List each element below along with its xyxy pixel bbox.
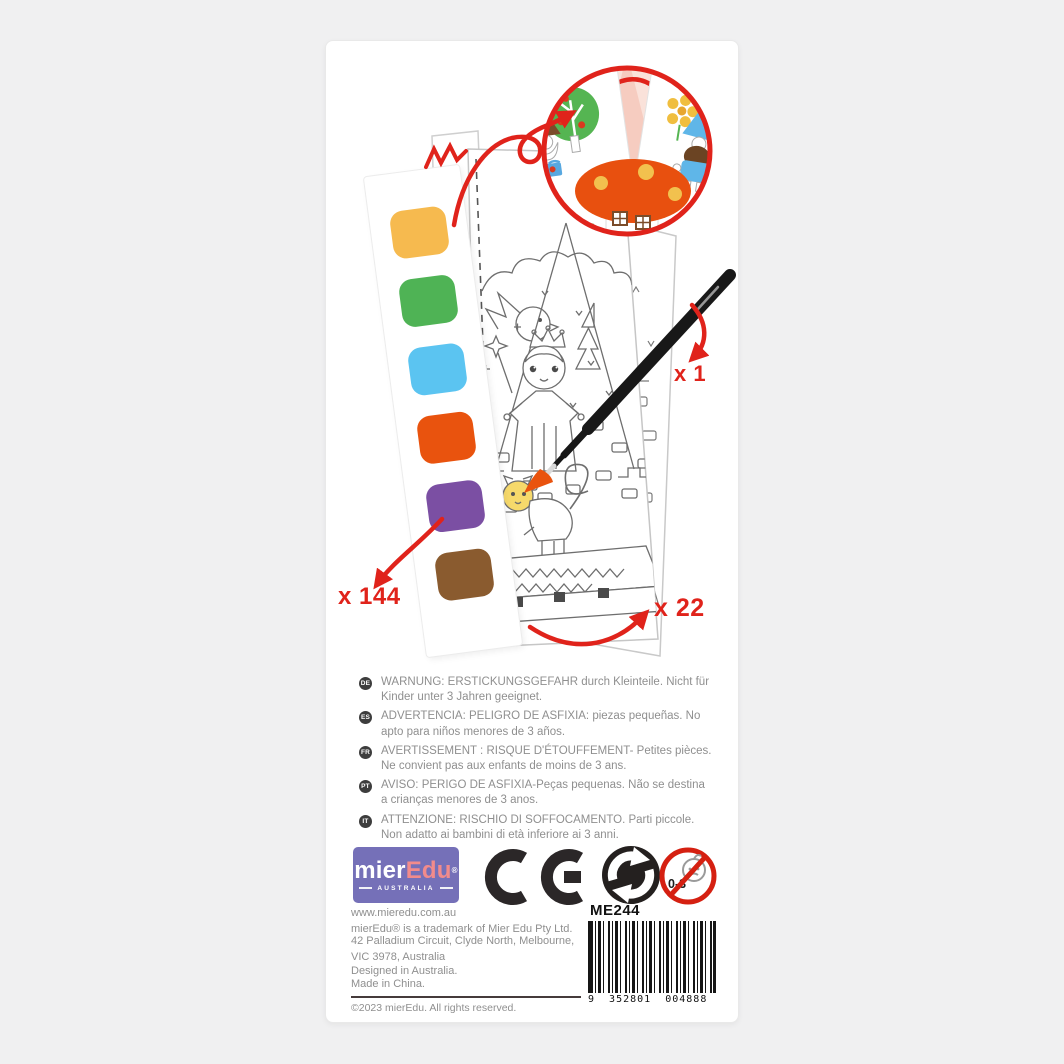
brand-name-suffix: Edu (406, 857, 452, 884)
footer-line: www.mieredu.com.au (351, 907, 589, 920)
footer-line: 42 Palladium Circuit, Clyde North, Melbo… (351, 935, 589, 948)
paint-chip (389, 205, 451, 260)
barcode-block: ME244 9 352801 004888 (588, 902, 718, 1005)
paint-chip (407, 342, 469, 397)
age-warning-icon: 0-3 (657, 845, 719, 907)
footer-line: Made in China. (351, 978, 589, 991)
footer-line: Designed in Australia. (351, 965, 589, 978)
language-badge: IT (359, 815, 372, 828)
recycle-icon (600, 844, 662, 906)
warning-row: FR AVERTISSEMENT : RISQUE D'ÉTOUFFEMENT-… (359, 744, 713, 774)
warning-text: AVERTISSEMENT : RISQUE D'ÉTOUFFEMENT- Pe… (381, 744, 713, 774)
footer-divider (351, 996, 581, 998)
brand-country: AUSTRALIA (377, 885, 434, 892)
warning-text: ATTENZIONE: RISCHIO DI SOFFOCAMENTO. Par… (381, 813, 713, 843)
brand-name-prefix: mier (354, 857, 406, 884)
palette-count-label: x 144 (338, 583, 401, 611)
brand-logo: mierEdu® AUSTRALIA (353, 847, 459, 903)
brush-count-label: x 1 (674, 361, 706, 387)
warning-text: AVISO: PERIGO DE ASFIXIA-Peças pequenas.… (381, 778, 713, 808)
ce-mark-icon (484, 848, 594, 906)
language-badge: FR (359, 746, 372, 759)
brand-country-row: AUSTRALIA (359, 885, 452, 892)
warning-row: ES ADVERTENCIA: PELIGRO DE ASFIXIA: piez… (359, 709, 713, 739)
warning-text: ADVERTENCIA: PELIGRO DE ASFIXIA: piezas … (381, 709, 713, 739)
product-photo-area: x 144 x 1 x 22 (326, 41, 738, 696)
footer-line: mierEdu® is a trademark of Mier Edu Pty … (351, 923, 589, 936)
warning-row: PT AVISO: PERIGO DE ASFIXIA-Peças pequen… (359, 778, 713, 808)
warnings-list: DE WARNUNG: ERSTICKUNGSGEFAHR durch Klei… (359, 675, 713, 847)
registered-mark: ® (452, 866, 458, 875)
barcode (588, 921, 716, 993)
product-code: ME244 (590, 902, 718, 919)
paint-chip (434, 547, 496, 602)
sheet-count-label: x 22 (654, 594, 705, 623)
brand-name: mierEdu® (354, 859, 458, 883)
copyright-line: ©2023 mierEdu. All rights reserved. (351, 1002, 589, 1014)
footer-line: VIC 3978, Australia (351, 951, 589, 964)
product-package: x 144 x 1 x 22 DE WARNUNG: ERSTICKUNGSGE… (325, 40, 739, 1023)
paint-chip (425, 479, 487, 534)
paint-chip (416, 410, 478, 465)
dash-decoration (359, 887, 372, 889)
language-badge: ES (359, 711, 372, 724)
paint-chip (398, 274, 460, 329)
barcode-digits: 9 352801 004888 (588, 994, 718, 1005)
language-badge: PT (359, 780, 372, 793)
footer-info: www.mieredu.com.au mierEdu® is a tradema… (351, 907, 589, 1014)
warning-row: IT ATTENZIONE: RISCHIO DI SOFFOCAMENTO. … (359, 813, 713, 843)
dash-decoration (440, 887, 453, 889)
